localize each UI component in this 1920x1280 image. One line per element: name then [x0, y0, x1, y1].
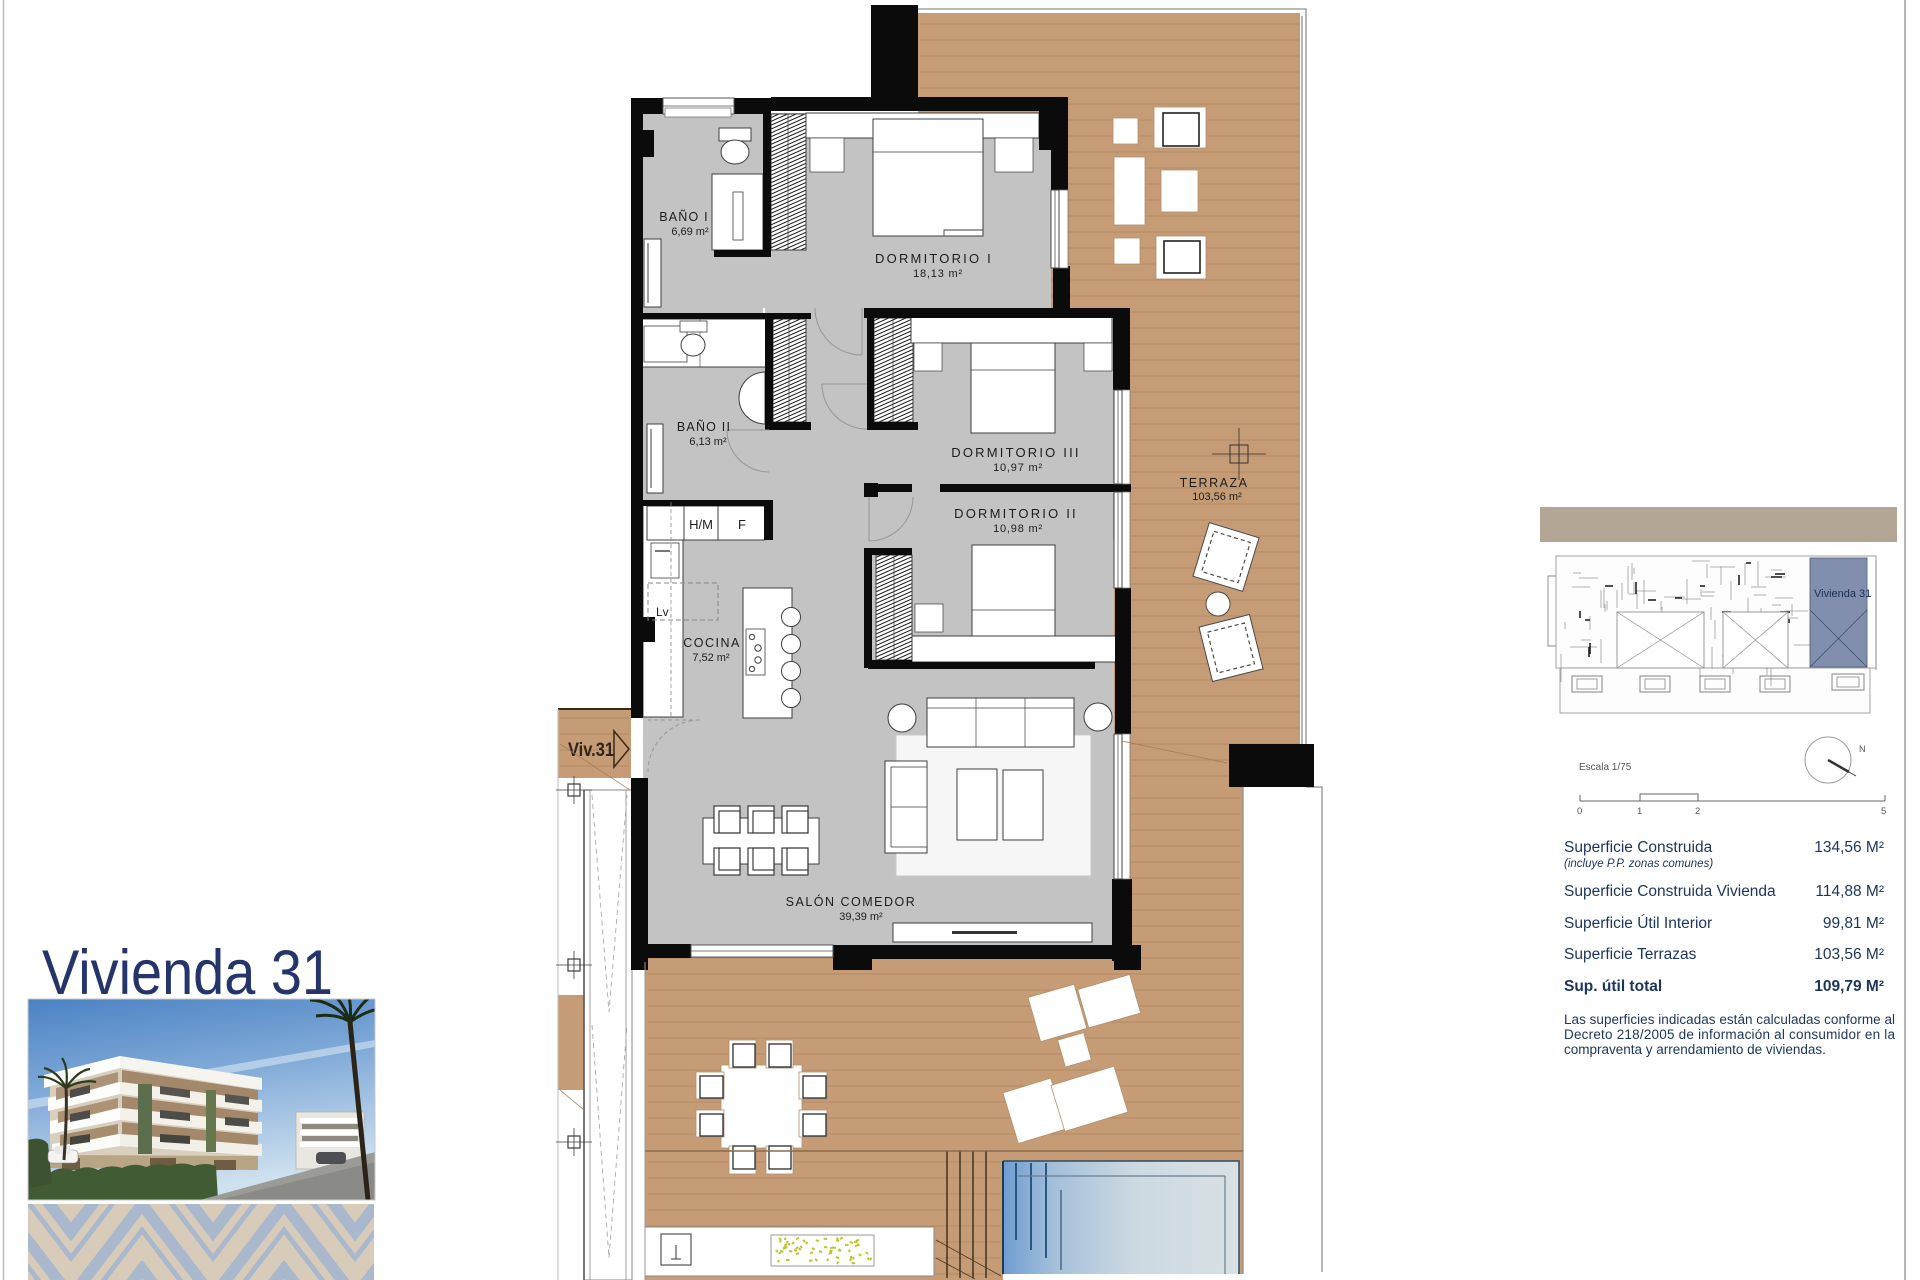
svg-text:5: 5 [1881, 806, 1886, 817]
svg-text:0: 0 [1577, 806, 1582, 817]
svg-text:109,79 M²: 109,79 M² [1814, 978, 1884, 995]
svg-text:SALÓN COMEDOR: SALÓN COMEDOR [786, 894, 917, 909]
svg-text:10,98 m²: 10,98 m² [993, 523, 1043, 535]
svg-text:(incluye P.P. zonas comunes): (incluye P.P. zonas comunes) [1564, 858, 1713, 870]
svg-text:1: 1 [1637, 806, 1642, 817]
svg-text:Las superficies indicadas está: Las superficies indicadas están calculad… [1564, 1012, 1895, 1027]
svg-text:Viv.31: Viv.31 [568, 740, 614, 761]
svg-text:6,69 m²: 6,69 m² [671, 226, 709, 238]
svg-text:134,56 M²: 134,56 M² [1814, 839, 1884, 856]
svg-text:TERRAZA: TERRAZA [1180, 476, 1249, 490]
svg-text:18,13 m²: 18,13 m² [913, 268, 963, 280]
svg-text:COCINA: COCINA [683, 636, 741, 650]
svg-text:N: N [1859, 744, 1866, 754]
svg-text:Vivienda 31: Vivienda 31 [42, 938, 333, 1008]
svg-text:103,56 m²: 103,56 m² [1192, 491, 1242, 503]
svg-text:DORMITORIO I: DORMITORIO I [875, 251, 993, 266]
svg-text:Decreto 218/2005 de informació: Decreto 218/2005 de información al consu… [1564, 1027, 1895, 1042]
svg-text:Vivienda 31: Vivienda 31 [1814, 588, 1871, 600]
svg-text:2: 2 [1695, 806, 1700, 817]
svg-text:BAÑO I: BAÑO I [659, 210, 709, 224]
svg-text:BAÑO II: BAÑO II [677, 420, 731, 434]
svg-text:99,81 M²: 99,81 M² [1823, 915, 1884, 932]
svg-text:Superficie Construida: Superficie Construida [1564, 839, 1713, 856]
svg-text:39,39 m²: 39,39 m² [839, 911, 883, 923]
svg-text:10,97 m²: 10,97 m² [993, 462, 1043, 474]
svg-text:F: F [738, 517, 746, 532]
svg-text:Superficie Terrazas: Superficie Terrazas [1564, 946, 1697, 963]
svg-text:7,52 m²: 7,52 m² [692, 652, 730, 664]
svg-text:Superficie Útil Interior: Superficie Útil Interior [1564, 915, 1712, 932]
svg-text:103,56 M²: 103,56 M² [1814, 946, 1884, 963]
svg-text:Sup. útil total: Sup. útil total [1564, 978, 1662, 995]
svg-text:Lv: Lv [656, 605, 669, 619]
svg-text:compraventa y arrendamiento de: compraventa y arrendamiento de viviendas… [1564, 1042, 1826, 1057]
svg-text:DORMITORIO III: DORMITORIO III [951, 445, 1081, 460]
svg-text:DORMITORIO II: DORMITORIO II [954, 506, 1078, 521]
svg-text:114,88 M²: 114,88 M² [1815, 883, 1884, 900]
svg-text:6,13 m²: 6,13 m² [689, 436, 727, 448]
svg-text:H/M: H/M [689, 517, 713, 532]
svg-text:Superficie Construida Vivienda: Superficie Construida Vivienda [1564, 883, 1776, 900]
svg-text:Escala 1/75: Escala 1/75 [1579, 762, 1632, 773]
